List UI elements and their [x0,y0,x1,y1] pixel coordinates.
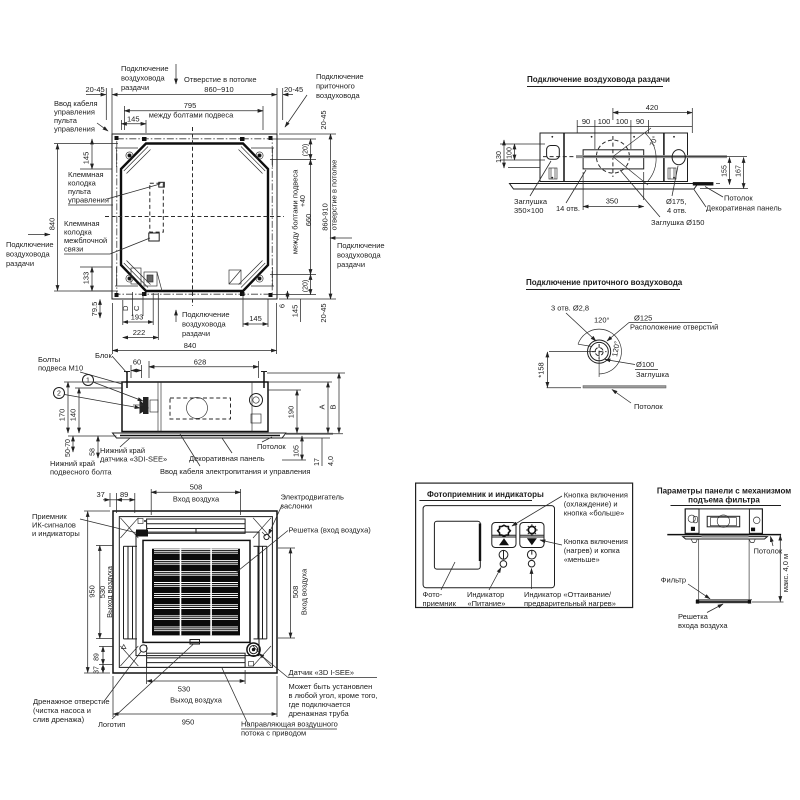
svg-text:145: 145 [82,152,91,165]
svg-text:6: 6 [278,304,287,308]
svg-text:C: C [132,305,141,311]
svg-text:350×100: 350×100 [514,206,543,215]
svg-text:90: 90 [582,117,590,126]
svg-text:950: 950 [88,585,97,598]
svg-text:отверстие в потолке: отверстие в потолке [330,160,339,231]
svg-text:Выход воздуха: Выход воздуха [170,696,223,705]
svg-text:145: 145 [127,115,140,124]
svg-text:Заглушка: Заглушка [636,370,670,379]
svg-text:Декоративная панель: Декоративная панель [706,204,782,213]
svg-text:Ввод кабеля электропитания и у: Ввод кабеля электропитания и управления [160,467,310,476]
svg-text:140: 140 [69,409,78,422]
svg-text:входа воздуха: входа воздуха [678,621,728,630]
svg-text:«Питание»: «Питание» [468,599,506,608]
svg-text:подвеса М10: подвеса М10 [38,364,83,373]
svg-text:Может быть установлен: Может быть установлен [289,682,373,691]
svg-text:130: 130 [496,151,503,163]
svg-text:подвесного болта: подвесного болта [50,468,112,477]
svg-text:145: 145 [249,314,262,323]
svg-text:20-45: 20-45 [319,110,328,129]
svg-text:между болтами подвеса: между болтами подвеса [149,111,234,120]
svg-text:заслонки: заслонки [281,502,313,511]
svg-text:и индикаторы: и индикаторы [32,529,80,538]
svg-text:100: 100 [507,147,514,159]
svg-text:Решетка (вход воздуха): Решетка (вход воздуха) [289,526,372,535]
svg-text:89: 89 [120,490,128,499]
svg-text:193: 193 [131,313,144,322]
svg-text:795: 795 [184,101,197,110]
svg-text:4,0: 4,0 [328,456,335,466]
svg-text:приточного: приточного [316,82,355,91]
svg-text:Электродвигатель: Электродвигатель [281,493,344,502]
svg-text:Потолок: Потолок [754,547,783,556]
svg-text:Направляющая воздушного: Направляющая воздушного [241,720,338,729]
svg-text:14 отв.: 14 отв. [556,204,580,213]
svg-text:Дренажное отверстие: Дренажное отверстие [33,697,110,706]
svg-text:A: A [318,404,327,409]
svg-text:приемник: приемник [423,599,457,608]
svg-text:где подключается: где подключается [289,700,351,709]
svg-text:раздачи: раздачи [337,260,365,269]
svg-text:90: 90 [636,117,644,126]
svg-text:воздуховода: воздуховода [316,91,361,100]
svg-text:Подключение приточного воздухо: Подключение приточного воздуховода [526,278,683,287]
svg-text:20-45: 20-45 [86,85,105,94]
svg-text:Подключение: Подключение [337,241,385,250]
svg-text:«меньше»: «меньше» [564,555,600,564]
svg-text:Вход воздуха: Вход воздуха [173,495,220,504]
svg-text:Вход воздуха: Вход воздуха [300,568,309,615]
svg-text:B: B [329,404,338,409]
svg-text:раздачи: раздачи [182,329,210,338]
svg-text:20-45: 20-45 [319,303,328,322]
svg-text:Заглушка Ø150: Заглушка Ø150 [651,218,704,227]
svg-text:Заглушка: Заглушка [514,197,548,206]
svg-text:управления: управления [54,125,95,134]
svg-text:840: 840 [48,218,57,231]
svg-text:Потолок: Потолок [257,442,286,451]
svg-text:37: 37 [94,666,101,674]
svg-text:100: 100 [598,117,611,126]
svg-text:управления: управления [68,196,109,205]
svg-text:раздачи: раздачи [121,83,149,92]
svg-text:(чистка насоса и: (чистка насоса и [33,706,91,715]
svg-text:840: 840 [184,341,197,350]
svg-text:100: 100 [616,117,629,126]
svg-text:Подключение: Подключение [6,240,54,249]
svg-text:Подключение: Подключение [316,72,364,81]
svg-text:190: 190 [287,406,296,419]
svg-text:воздуховода: воздуховода [337,251,382,260]
svg-text:+40: +40 [300,195,307,207]
svg-text:508: 508 [190,483,203,492]
svg-text:связи: связи [64,245,83,254]
svg-text:860-910: 860-910 [321,203,330,231]
svg-text:17: 17 [314,458,321,466]
svg-text:Расположение отверстий: Расположение отверстий [630,323,718,332]
svg-text:воздуховода: воздуховода [121,74,166,83]
svg-text:(нагрев) и копка: (нагрев) и копка [564,546,621,555]
svg-text:Индикатор «Оттаивание/: Индикатор «Оттаивание/ [524,590,612,599]
svg-text:раздачи: раздачи [6,259,34,268]
svg-text:потока с приводом: потока с приводом [241,729,306,738]
svg-text:Ø100: Ø100 [636,360,654,369]
svg-text:170: 170 [58,409,67,422]
svg-text:530: 530 [178,685,191,694]
svg-text:Кнопка включения: Кнопка включения [564,537,628,546]
svg-text:37: 37 [97,490,105,499]
svg-text:Блок: Блок [95,351,112,360]
svg-text:20-45: 20-45 [284,85,303,94]
svg-text:Потолок: Потолок [724,194,753,203]
svg-text:420: 420 [646,103,659,112]
svg-text:660: 660 [304,214,313,227]
svg-text:воздуховода: воздуховода [182,320,227,329]
svg-text:D: D [121,305,130,311]
svg-text:167: 167 [736,165,743,177]
svg-text:*158: *158 [537,362,546,377]
svg-text:350: 350 [606,197,619,206]
svg-text:датчика «3DI-SEE»: датчика «3DI-SEE» [100,455,167,464]
svg-text:Подключение: Подключение [121,64,169,73]
svg-text:Подключение: Подключение [182,310,230,319]
svg-text:2: 2 [57,391,61,398]
svg-text:860~910: 860~910 [204,85,233,94]
svg-text:79.5: 79.5 [90,302,99,317]
svg-text:слив дренажа): слив дренажа) [33,715,85,724]
svg-text:Декоративная панель: Декоративная панель [189,454,265,463]
svg-text:133: 133 [82,272,91,285]
svg-text:в любой угол, кроме того,: в любой угол, кроме того, [289,691,378,700]
svg-text:(20): (20) [303,280,310,292]
svg-text:подъема фильтра: подъема фильтра [688,496,760,505]
svg-text:120°: 120° [594,316,610,325]
svg-text:222: 222 [133,328,146,337]
svg-text:1: 1 [86,378,90,385]
svg-text:макс. 4,0 м: макс. 4,0 м [781,554,790,592]
svg-text:50-70: 50-70 [65,439,72,457]
svg-text:между болтами подвеса: между болтами подвеса [291,169,300,254]
svg-text:предварительный нагрев»: предварительный нагрев» [524,599,616,608]
svg-text:Подключение воздуховода раздач: Подключение воздуховода раздачи [527,75,670,84]
svg-text:Фильтр: Фильтр [661,576,686,585]
svg-text:Выход воздуха: Выход воздуха [105,565,114,618]
svg-text:Индикатор: Индикатор [467,590,504,599]
svg-text:Фотоприемник и индикаторы: Фотоприемник и индикаторы [427,490,544,499]
svg-text:105: 105 [294,445,301,457]
svg-text:кнопка «больше»: кнопка «больше» [564,509,624,518]
svg-text:4 отв.: 4 отв. [667,206,687,215]
svg-text:Логотип: Логотип [98,720,125,729]
svg-text:Ø175,: Ø175, [666,197,686,206]
svg-text:Ø125: Ø125 [634,314,652,323]
svg-text:Параметры панели с механизмом: Параметры панели с механизмом [657,487,791,496]
svg-text:воздуховода: воздуховода [6,250,51,259]
svg-text:950: 950 [182,718,195,727]
svg-text:Потолок: Потолок [634,402,663,411]
svg-text:Решетка: Решетка [678,612,709,621]
svg-text:Фото-: Фото- [423,590,443,599]
svg-text:3 отв. Ø2,8: 3 отв. Ø2,8 [551,304,589,313]
svg-text:628: 628 [194,358,207,367]
svg-text:155: 155 [722,165,729,177]
svg-text:дренажная труба: дренажная труба [289,709,350,718]
svg-text:(20): (20) [303,144,310,156]
svg-text:Датчик «3D I-SEE»: Датчик «3D I-SEE» [289,668,355,677]
svg-text:89: 89 [94,653,101,661]
svg-text:58: 58 [90,448,97,456]
svg-text:(охлаждение) и: (охлаждение) и [564,500,618,509]
svg-text:60: 60 [133,358,141,367]
svg-text:145: 145 [291,305,300,318]
svg-text:Отверстие в потолке: Отверстие в потолке [184,75,257,84]
svg-text:Кнопка включения: Кнопка включения [564,491,628,500]
